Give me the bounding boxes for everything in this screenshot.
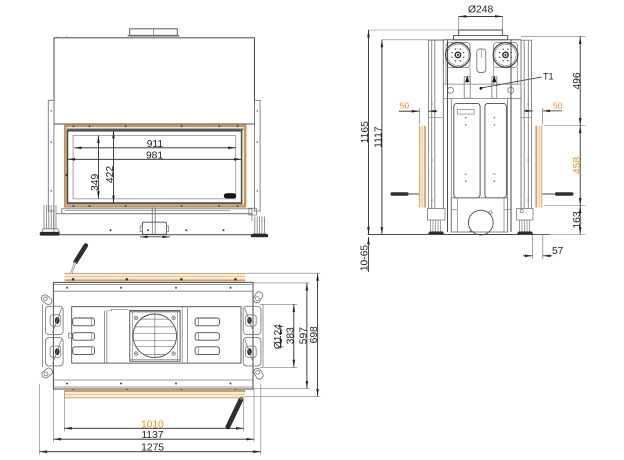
svg-text:698: 698	[309, 326, 320, 343]
svg-text:496: 496	[572, 72, 583, 89]
svg-text:T1: T1	[543, 72, 554, 82]
svg-text:1117: 1117	[374, 126, 385, 148]
svg-text:1165: 1165	[360, 121, 371, 143]
svg-text:50: 50	[400, 101, 410, 111]
svg-text:1275: 1275	[141, 443, 164, 454]
svg-text:10-65: 10-65	[359, 245, 370, 272]
svg-text:383: 383	[285, 327, 296, 344]
svg-text:349: 349	[90, 174, 101, 191]
svg-text:597: 597	[299, 327, 310, 344]
svg-text:458: 458	[572, 157, 583, 174]
svg-text:Ø124: Ø124	[273, 324, 284, 349]
svg-text:911: 911	[147, 139, 164, 150]
svg-text:50: 50	[553, 100, 563, 110]
svg-text:Ø248: Ø248	[468, 5, 493, 16]
svg-text:163: 163	[572, 211, 583, 228]
svg-text:422: 422	[105, 166, 116, 183]
svg-text:1010: 1010	[141, 419, 164, 430]
svg-text:57: 57	[552, 246, 564, 257]
svg-text:981: 981	[146, 150, 163, 161]
svg-text:1137: 1137	[141, 430, 163, 441]
